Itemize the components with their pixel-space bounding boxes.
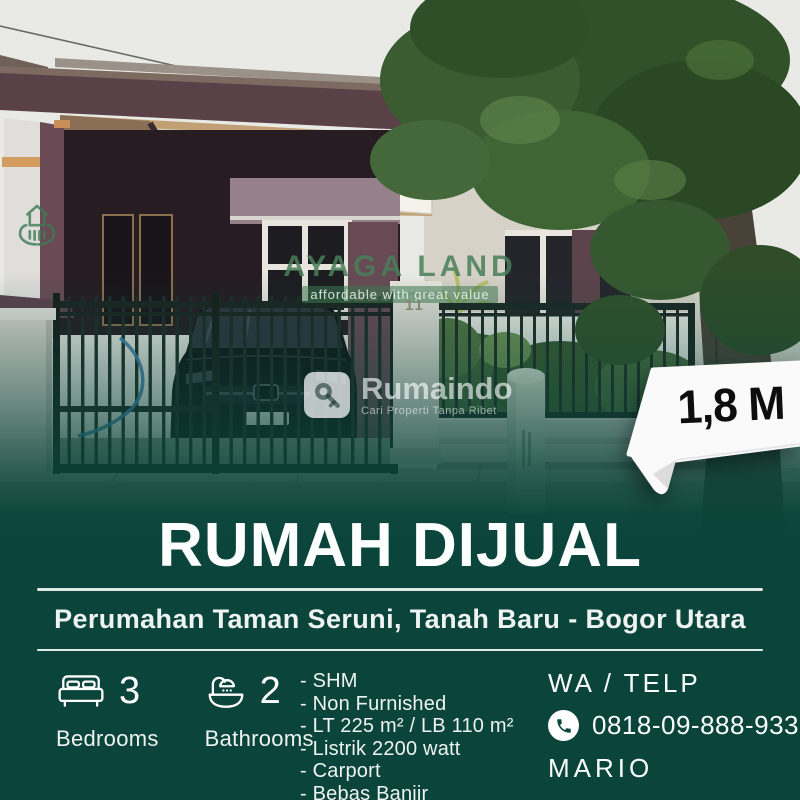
agency-watermark: AYAGA LAND affordable with great value: [0, 194, 800, 304]
bathrooms-count: 2: [260, 670, 281, 713]
bedrooms-label: Bedrooms: [56, 726, 159, 752]
contact-name: MARIO: [548, 753, 799, 784]
contact-column: WA / TELP 0818-09-888-933 MARIO: [548, 668, 799, 784]
info-panel: RUMAH DIJUAL Perumahan Taman Seruni, Tan…: [0, 498, 800, 800]
details-row: 3 Bedrooms: [0, 651, 800, 800]
bath-icon: [205, 670, 247, 712]
gate-post-left: [0, 308, 56, 472]
bathrooms-label: Bathrooms: [205, 726, 314, 752]
feature-item: - LT 225 m² / LB 110 m²: [300, 715, 548, 738]
contact-heading: WA / TELP: [548, 668, 799, 699]
bedrooms-stat: 3 Bedrooms: [56, 668, 159, 752]
price-value: 1,8 M: [664, 374, 797, 435]
listing-location: Perumahan Taman Seruni, Tanah Baru - Bog…: [0, 591, 800, 647]
bedrooms-count: 3: [119, 670, 140, 713]
platform-tagline: Cari Properti Tanpa Ribet: [361, 405, 513, 417]
stats-column: 3 Bedrooms: [56, 668, 300, 752]
house-photo: AYAGA LAND affordable with great value R…: [0, 0, 800, 545]
feature-list: - SHM - Non Furnished - LT 225 m² / LB 1…: [300, 670, 548, 800]
bed-icon: [56, 671, 106, 711]
feature-item: - Carport: [300, 760, 548, 783]
agency-logo-text: AYAGA LAND: [0, 250, 800, 284]
feature-item: - Bebas Banjir: [300, 783, 548, 800]
platform-logo-icon: [304, 372, 350, 418]
agency-logo-icon: [0, 194, 74, 254]
feature-item: - Listrik 2200 watt: [300, 738, 548, 761]
phone-icon: [548, 710, 579, 741]
contact-phone: 0818-09-888-933: [592, 710, 799, 741]
price-tag: 1,8 M: [622, 360, 800, 505]
phone-row: 0818-09-888-933: [548, 710, 799, 741]
feature-item: - SHM: [300, 670, 548, 693]
platform-name: Rumaindo: [361, 374, 513, 404]
agency-tagline: affordable with great value: [302, 286, 497, 303]
platform-watermark: Rumaindo Cari Properti Tanpa Ribet: [304, 372, 513, 418]
bathrooms-stat: 2 Bathrooms: [205, 668, 314, 752]
listing-title: RUMAH DIJUAL: [0, 506, 800, 586]
house-number: 11: [405, 297, 425, 314]
listing-poster: AYAGA LAND affordable with great value R…: [0, 0, 800, 800]
feature-item: - Non Furnished: [300, 693, 548, 716]
